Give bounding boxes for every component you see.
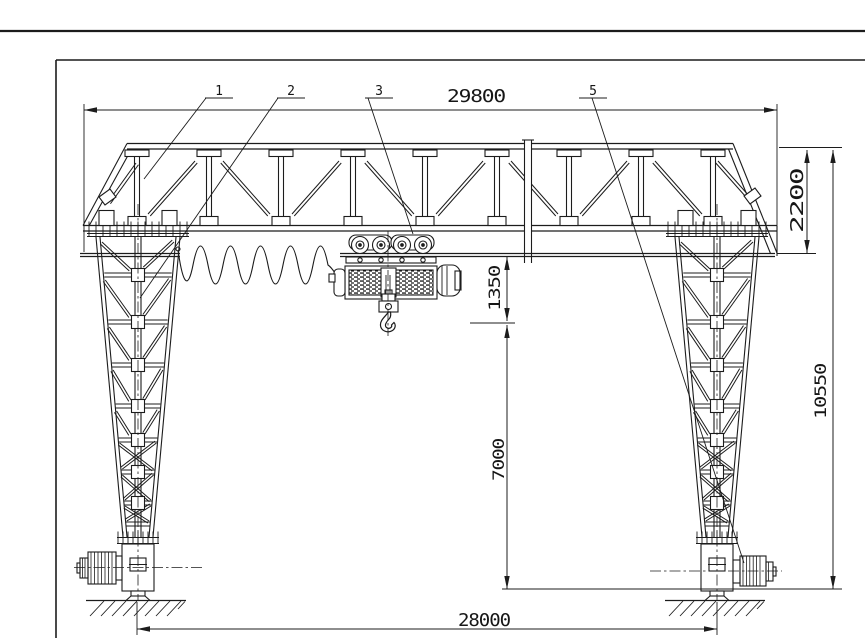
generated-linework <box>0 31 865 638</box>
cad-line <box>145 370 163 400</box>
cad-line <box>592 98 744 563</box>
cad-line <box>692 370 710 400</box>
cad-shape <box>804 150 809 163</box>
cad-shape <box>380 244 383 247</box>
cad-shape <box>382 294 395 301</box>
cad-line <box>679 244 708 271</box>
cad-line <box>436 161 483 214</box>
hoist-rail <box>80 254 775 257</box>
cad-shape <box>401 244 404 247</box>
cad-line <box>580 161 627 214</box>
cad-shape <box>272 217 290 226</box>
cad-line <box>735 601 749 616</box>
cad-line <box>511 161 558 214</box>
cad-shape <box>557 150 581 157</box>
cad-line <box>109 327 131 359</box>
cad-line <box>143 410 157 433</box>
cad-shape <box>704 626 717 631</box>
cad-line <box>367 161 414 214</box>
left-leg <box>74 204 205 601</box>
cad-shape <box>773 567 776 576</box>
cad-shape <box>504 576 509 589</box>
cad-shape <box>504 308 509 321</box>
cad-line <box>724 327 746 359</box>
cad-shape <box>416 217 434 226</box>
cad-line <box>145 411 159 434</box>
cad-shape <box>84 107 97 112</box>
dim-hoist-headroom-text: 1350 <box>485 266 504 311</box>
cad-line <box>675 237 702 537</box>
cad-shape <box>485 150 509 157</box>
dim-girder-depth-text: 2200 <box>787 169 808 233</box>
cad-line <box>117 411 131 434</box>
cad-line <box>100 244 129 271</box>
cad-line <box>90 601 104 616</box>
cad-line <box>105 280 131 316</box>
cad-line <box>722 278 748 314</box>
cad-shape <box>77 563 80 573</box>
cad-shape <box>629 150 653 157</box>
callout-3-label: 3 <box>375 84 383 99</box>
callout-leaders <box>140 98 744 563</box>
cad-shape <box>741 211 756 226</box>
cad-shape <box>421 258 425 262</box>
cad-line <box>134 601 148 616</box>
cad-shape <box>437 265 460 296</box>
callout-5-label: 5 <box>589 84 597 99</box>
cad-line <box>223 161 270 214</box>
callout-1-label: 1 <box>215 84 223 99</box>
cad-line <box>112 601 126 616</box>
cad-shape <box>137 626 150 631</box>
cad-line <box>143 369 161 399</box>
cad-shape <box>804 240 809 253</box>
cad-line <box>722 369 740 399</box>
cad-line <box>724 601 738 616</box>
cad-line <box>718 161 750 197</box>
cad-shape <box>334 269 345 296</box>
cad-line <box>722 410 736 433</box>
cad-line <box>684 280 710 316</box>
cad-shape <box>99 211 114 226</box>
cad-shape <box>504 257 509 270</box>
cad-shape <box>830 150 835 163</box>
cad-line <box>702 601 716 616</box>
cad-line <box>509 163 556 216</box>
cad-line <box>143 326 165 358</box>
cad-line <box>294 163 341 216</box>
cad-shape <box>379 301 398 312</box>
cad-shape <box>504 325 509 338</box>
dim-overall-height-text: 10550 <box>811 364 830 419</box>
cad-line <box>145 601 159 616</box>
cad-shape <box>329 274 335 282</box>
cad-shape <box>704 217 722 226</box>
ground-hatch-right <box>665 601 765 617</box>
cad-line <box>438 163 485 216</box>
cad-shape <box>80 558 88 578</box>
cad-line <box>292 161 339 214</box>
cad-shape <box>733 560 740 583</box>
crane-drawing-sheet: 29800 28000 2200 10550 1350 7000 1 2 3 5 <box>0 0 865 638</box>
cad-line <box>724 242 753 269</box>
cad-shape <box>488 217 506 226</box>
cad-shape <box>764 107 777 112</box>
right-leg <box>650 204 782 601</box>
cad-line <box>669 601 683 616</box>
cad-line <box>653 163 700 216</box>
callout-2-label: 2 <box>287 84 295 99</box>
cad-line <box>724 411 738 434</box>
cad-shape <box>632 217 650 226</box>
cad-line <box>150 163 197 216</box>
cad-line <box>368 98 413 234</box>
cad-shape <box>269 150 293 157</box>
cad-shape <box>200 217 218 226</box>
ground-hatch-left <box>86 601 186 617</box>
cad-shape <box>830 576 835 589</box>
cad-line <box>143 278 169 314</box>
cad-shape <box>400 258 404 262</box>
cad-shape <box>560 217 578 226</box>
hoist-trolley <box>329 231 461 336</box>
cad-line <box>691 601 705 616</box>
cad-shape <box>178 246 335 284</box>
cad-shape <box>744 188 761 204</box>
festoon-cable <box>176 246 335 284</box>
cad-shape <box>116 556 122 580</box>
cad-shape <box>359 244 362 247</box>
cad-line <box>123 601 137 616</box>
cad-shape <box>125 150 149 157</box>
cad-line <box>655 161 702 214</box>
cad-line <box>724 280 750 316</box>
cad-line <box>113 370 131 400</box>
cad-shape <box>381 268 396 297</box>
dim-rail-span-text: 28000 <box>458 610 510 631</box>
gantry-crane-drawing: 29800 28000 2200 10550 1350 7000 1 2 3 5 <box>0 0 865 638</box>
cad-line <box>688 327 710 359</box>
cad-line <box>145 327 167 359</box>
cad-shape <box>525 140 532 263</box>
cad-shape <box>197 150 221 157</box>
cad-line <box>681 242 710 269</box>
cad-shape <box>422 244 425 247</box>
cad-shape <box>341 150 365 157</box>
cad-line <box>156 601 170 616</box>
cad-line <box>148 161 195 214</box>
cad-line <box>722 326 744 358</box>
cad-line <box>713 601 727 616</box>
dim-clear-height-text: 7000 <box>489 439 508 481</box>
cad-shape <box>766 562 773 581</box>
cad-shape <box>358 258 362 262</box>
power-mast <box>522 140 534 263</box>
cad-line <box>680 601 694 616</box>
cad-line <box>724 370 742 400</box>
cad-shape <box>379 258 383 262</box>
cad-line <box>96 237 123 537</box>
cad-shape <box>344 217 362 226</box>
cad-shape <box>413 150 437 157</box>
cad-shape <box>678 211 693 226</box>
cad-shape <box>162 211 177 226</box>
dim-girder-length-text: 29800 <box>447 86 505 107</box>
cad-line <box>101 601 115 616</box>
cad-line <box>102 242 131 269</box>
cad-shape <box>701 150 725 157</box>
